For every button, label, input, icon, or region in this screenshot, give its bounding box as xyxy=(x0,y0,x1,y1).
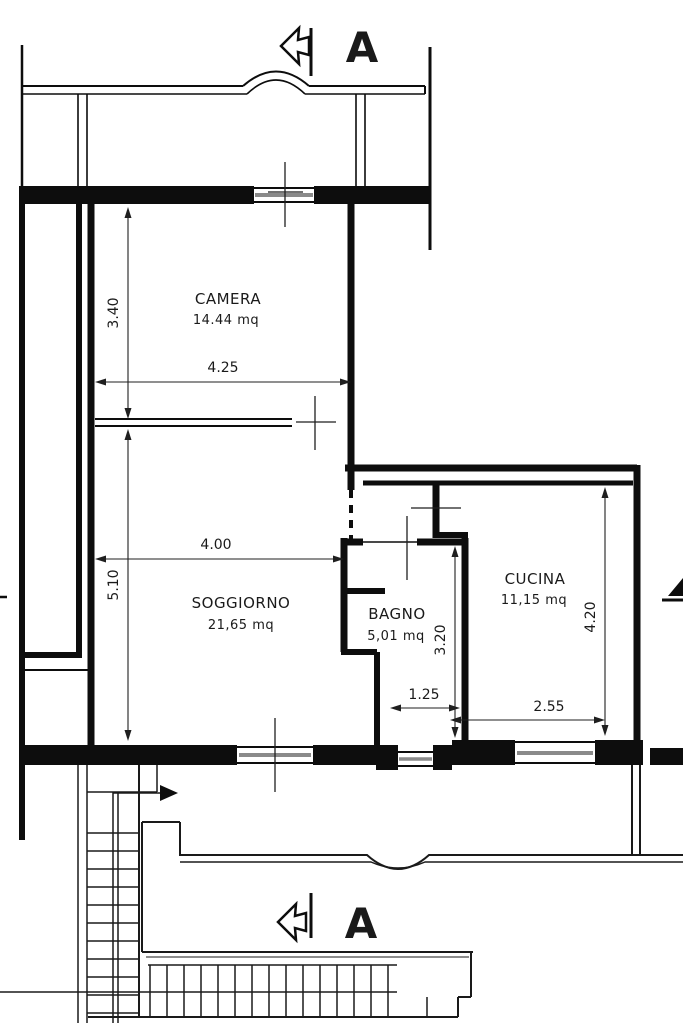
solid-right-arrow-icon xyxy=(160,785,178,801)
dim-camera-width: 4.25 xyxy=(207,360,238,376)
room-label-cucina: CUCINA xyxy=(505,570,566,588)
section-label-top: A xyxy=(346,23,379,72)
room-area-bagno: 5,01 mq xyxy=(367,629,425,644)
cucina-window xyxy=(515,742,595,763)
room-area-cucina: 11,15 mq xyxy=(501,593,567,608)
room-area-soggiorno: 21,65 mq xyxy=(208,618,274,633)
room-label-camera: CAMERA xyxy=(195,290,261,308)
room-label-soggiorno: SOGGIORNO xyxy=(192,594,291,612)
dim-camera-height: 3.40 xyxy=(106,297,122,328)
dim-soggiorno-height: 5.10 xyxy=(106,569,122,600)
dim-soggiorno-width: 4.00 xyxy=(200,537,231,553)
dim-bagno-width: 1.25 xyxy=(408,687,439,703)
stairs-horizontal-run xyxy=(150,965,388,1017)
section-marker-right-partial xyxy=(662,578,683,600)
floor-plan-page: 3.40 4.25 4.00 5.10 3.20 1.25 2.55 4.20 … xyxy=(0,0,683,1023)
camera-window xyxy=(253,186,315,204)
section-arrow-icon xyxy=(278,904,306,940)
dim-cucina-height: 4.20 xyxy=(583,601,599,632)
top-balcony xyxy=(21,45,430,250)
stairs-vertical-run xyxy=(78,765,157,1023)
section-label-bottom: A xyxy=(345,899,378,948)
stair-direction-arrow xyxy=(113,785,178,801)
dim-cucina-width: 2.55 xyxy=(533,699,564,715)
section-arrow-icon xyxy=(281,28,309,64)
room-area-camera: 14.44 mq xyxy=(193,313,259,328)
floor-plan-svg: 3.40 4.25 4.00 5.10 3.20 1.25 2.55 4.20 … xyxy=(0,0,683,1023)
dim-bagno-height: 3.20 xyxy=(433,624,449,655)
lower-floor-outline xyxy=(0,765,683,1017)
walls xyxy=(21,186,683,840)
section-marker-bottom: A xyxy=(278,893,378,948)
section-arrow-icon xyxy=(668,578,683,596)
room-label-bagno: BAGNO xyxy=(368,605,425,623)
section-marker-top: A xyxy=(281,23,379,76)
bagno-window-bay xyxy=(398,752,433,766)
